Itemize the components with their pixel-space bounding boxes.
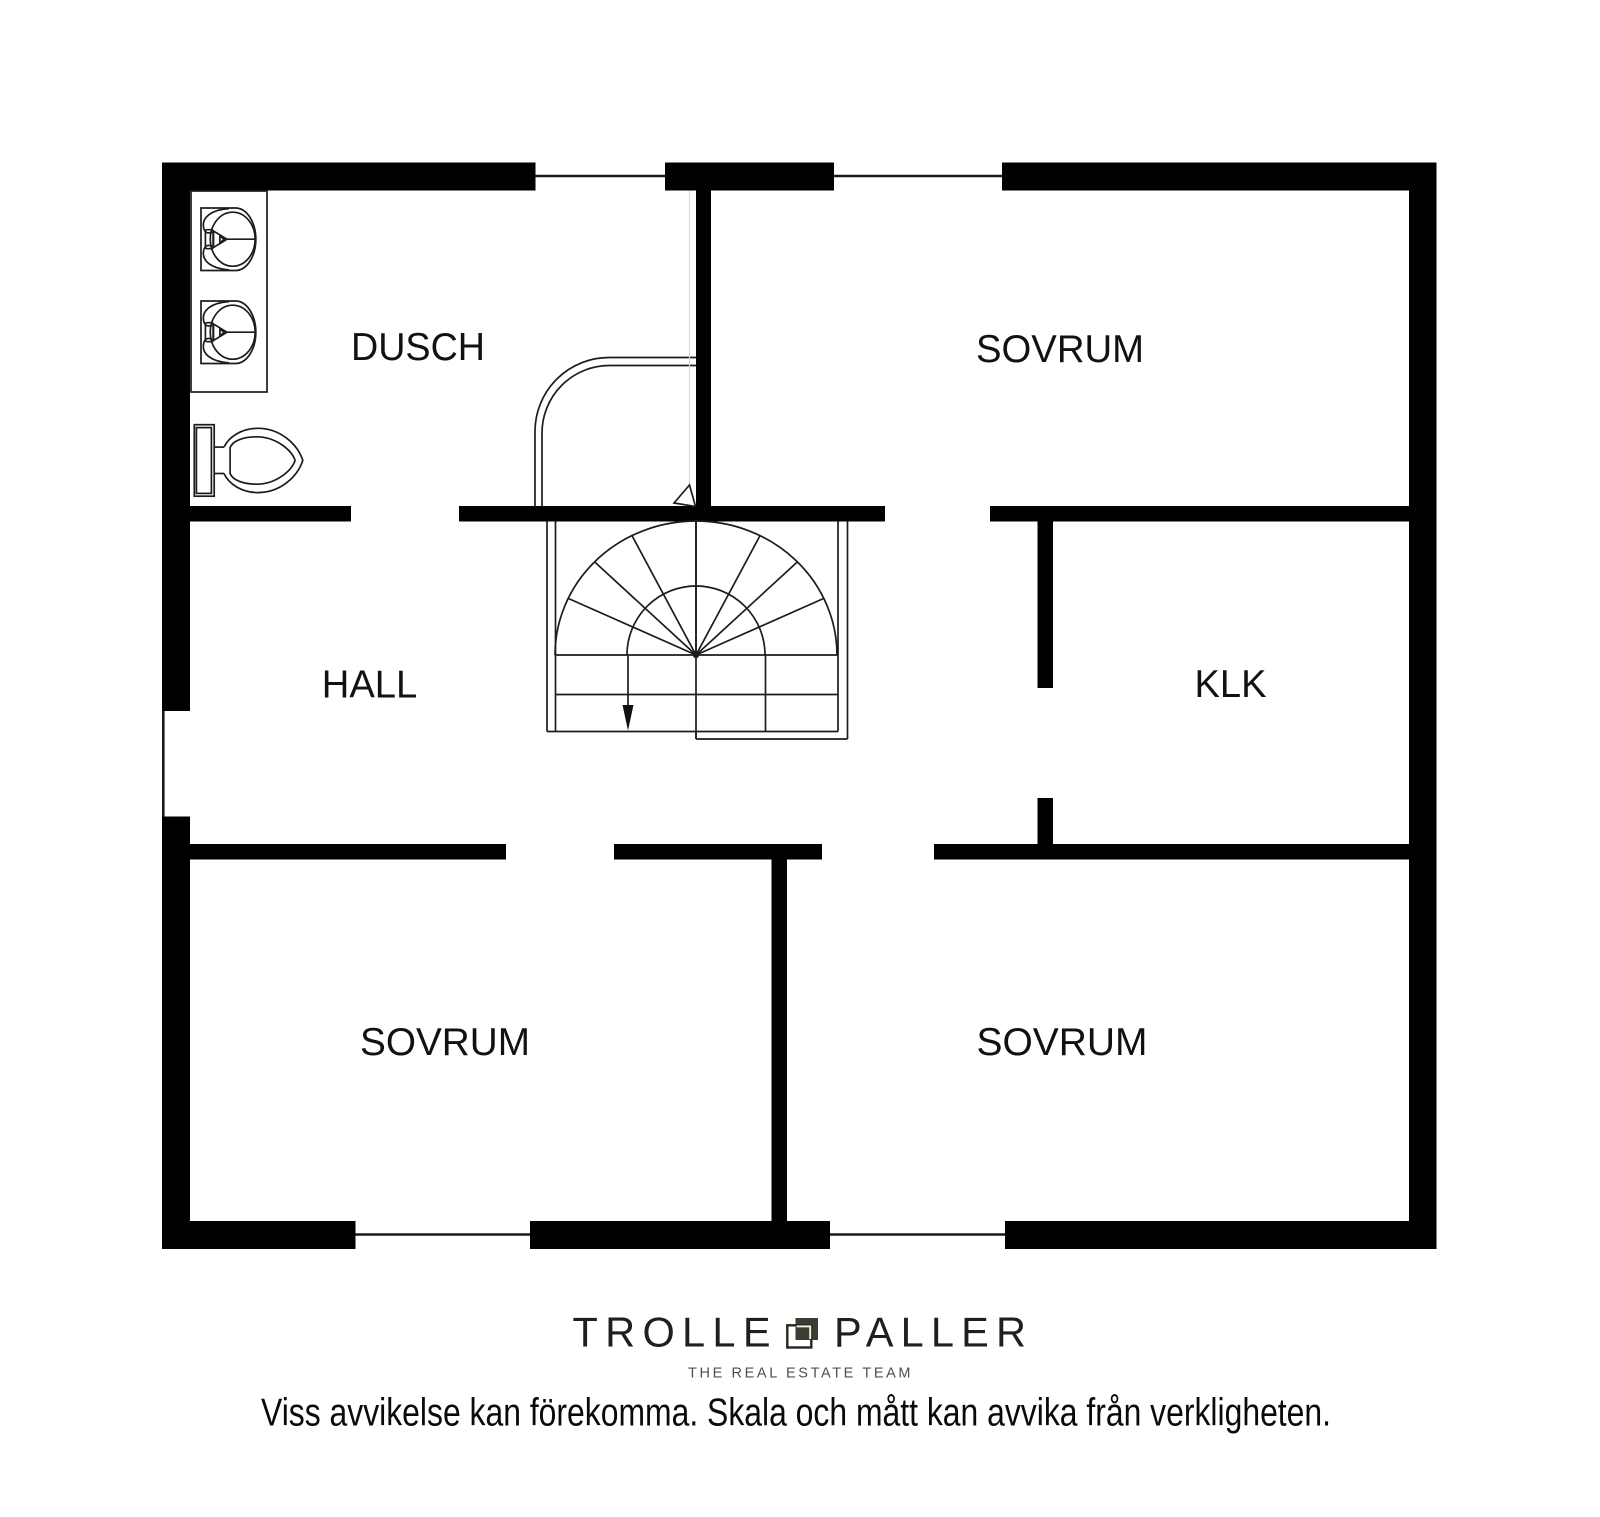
svg-text:DUSCH: DUSCH: [351, 326, 485, 369]
svg-text:HALL: HALL: [322, 664, 418, 707]
svg-text:SOVRUM: SOVRUM: [360, 1021, 530, 1064]
svg-text:THE REAL ESTATE TEAM: THE REAL ESTATE TEAM: [688, 1366, 911, 1382]
svg-text:SOVRUM: SOVRUM: [976, 328, 1144, 371]
svg-text:SOVRUM: SOVRUM: [977, 1021, 1148, 1064]
svg-text:KLK: KLK: [1195, 663, 1267, 706]
svg-text:Viss avvikelse kan förekomma.: Viss avvikelse kan förekomma. Skala och …: [261, 1392, 1331, 1435]
